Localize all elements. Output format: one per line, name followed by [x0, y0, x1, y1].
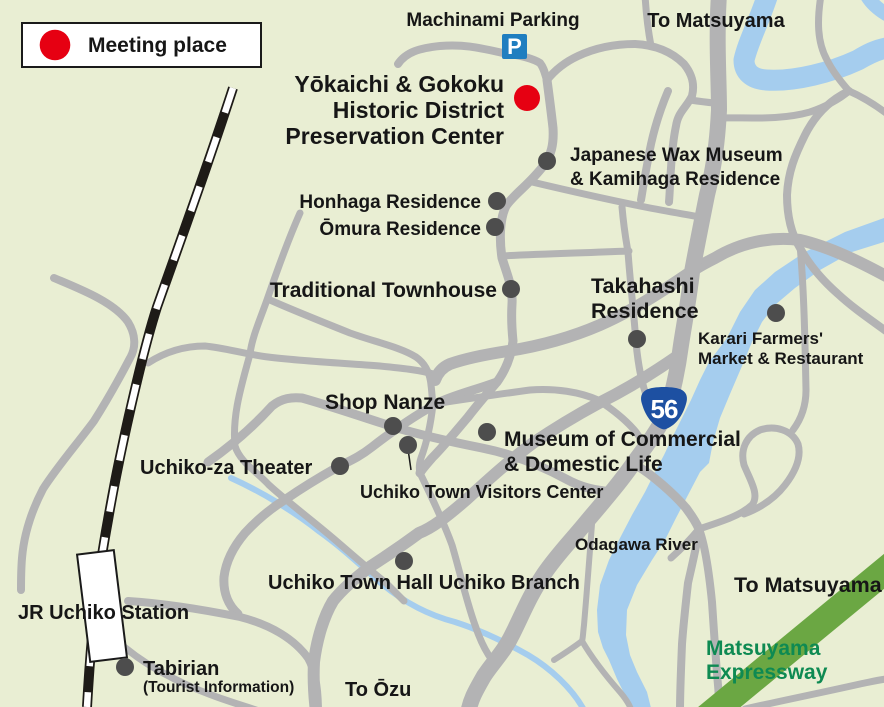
svg-text:To Matsuyama: To Matsuyama — [647, 10, 785, 32]
svg-text:Uchiko-za Theater: Uchiko-za Theater — [140, 457, 312, 479]
svg-text:Preservation Center: Preservation Center — [285, 123, 504, 149]
svg-text:Japanese Wax Museum: Japanese Wax Museum — [570, 145, 783, 166]
svg-text:Residence: Residence — [591, 299, 699, 323]
svg-text:Odagawa River: Odagawa River — [575, 535, 698, 554]
svg-text:Takahashi: Takahashi — [591, 274, 695, 298]
svg-text:P: P — [507, 34, 522, 59]
svg-text:JR Uchiko Station: JR Uchiko Station — [18, 602, 189, 624]
svg-text:To Matsuyama: To Matsuyama — [734, 573, 883, 597]
svg-text:Yōkaichi & Gokoku: Yōkaichi & Gokoku — [294, 71, 504, 97]
svg-text:& Domestic Life: & Domestic Life — [504, 453, 663, 476]
svg-text:& Kamihaga Residence: & Kamihaga Residence — [570, 169, 780, 190]
svg-text:Museum of Commercial: Museum of Commercial — [504, 428, 741, 451]
svg-text:Shop Nanze: Shop Nanze — [325, 391, 445, 414]
svg-text:To Ōzu: To Ōzu — [345, 679, 411, 701]
svg-text:Ōmura Residence: Ōmura Residence — [319, 219, 481, 240]
svg-text:Machinami Parking: Machinami Parking — [406, 10, 579, 31]
svg-text:56: 56 — [651, 394, 678, 424]
svg-text:Expressway: Expressway — [706, 661, 828, 684]
svg-text:Meeting place: Meeting place — [88, 34, 227, 57]
svg-text:Honhaga Residence: Honhaga Residence — [299, 192, 481, 213]
svg-text:Uchiko Town Visitors Center: Uchiko Town Visitors Center — [360, 482, 603, 502]
svg-text:Historic District: Historic District — [333, 97, 505, 123]
svg-text:(Tourist Information): (Tourist Information) — [143, 679, 294, 696]
svg-text:Uchiko Town Hall Uchiko Branch: Uchiko Town Hall Uchiko Branch — [268, 572, 580, 594]
svg-text:Traditional Townhouse: Traditional Townhouse — [270, 279, 497, 302]
svg-text:Tabirian: Tabirian — [143, 658, 219, 680]
svg-text:Market & Restaurant: Market & Restaurant — [698, 349, 864, 368]
svg-text:Matsuyama: Matsuyama — [706, 637, 821, 660]
svg-text:Karari Farmers': Karari Farmers' — [698, 329, 823, 348]
